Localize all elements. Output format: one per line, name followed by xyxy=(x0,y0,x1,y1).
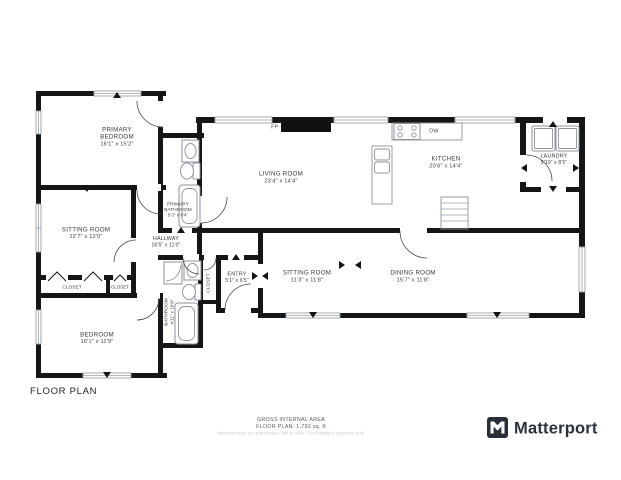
kitchen-dims: 20'6" x 14'4" xyxy=(429,164,462,170)
hallway-dims: 16'5" x 11'0" xyxy=(151,243,180,249)
primary-bathroom-dims: 5'3" x 8'4" xyxy=(168,213,189,218)
fireplace-label: FP xyxy=(271,125,279,131)
bathroom-bathtub-icon xyxy=(175,303,198,344)
primary-bathroom-sink-icon xyxy=(182,140,199,162)
bathroom-label: BATHROOM xyxy=(164,298,169,326)
dishwasher-label: DW xyxy=(429,129,439,135)
kitchen-island-sink-icon xyxy=(372,146,392,204)
primary-bedroom-label: PRIMARY xyxy=(102,127,132,134)
stove-icon xyxy=(394,124,420,140)
primary-bathroom-toilet-icon xyxy=(181,163,201,179)
dining-room-dims: 15'7" x 11'8" xyxy=(397,278,430,284)
entry-label: ENTRY xyxy=(227,272,246,278)
closet-2-label: CLOSET xyxy=(111,285,129,290)
hallway-label: HALLWAY xyxy=(153,236,179,242)
matterport-logo-icon xyxy=(487,417,508,438)
sitting-room-2-label: SITTING ROOM xyxy=(283,270,331,277)
closet-1-label: CLOSET xyxy=(62,285,81,290)
laundry-label: LAUNDRY xyxy=(540,154,567,160)
primary-bedroom-dims: 16'1" x 15'2" xyxy=(100,142,133,148)
stairs-icon xyxy=(441,197,468,229)
floor-plan-page: PRIMARY BEDROOM 16'1" x 15'2" PRIMARY BA… xyxy=(0,0,621,480)
laundry-dims: 5'10" x 8'5" xyxy=(541,160,568,166)
kitchen-label: KITCHEN xyxy=(432,156,461,163)
bathroom-sink-icon xyxy=(184,261,201,280)
sitting-room-1-dims: 12'7" x 12'0" xyxy=(69,234,102,240)
dryer-icon xyxy=(556,126,579,151)
floor-plan-drawing: PRIMARY BEDROOM 16'1" x 15'2" PRIMARY BA… xyxy=(0,0,621,480)
primary-bathroom-label: PRIMARY xyxy=(167,202,190,207)
living-room-label: LIVING ROOM xyxy=(259,171,303,178)
shower-icon xyxy=(164,262,182,284)
living-room-dims: 23'4" x 14'4" xyxy=(264,179,297,185)
closet-3-label: CLOSET xyxy=(206,273,211,292)
disclaimer-text: Measurements are approximate. Not to sca… xyxy=(217,431,365,436)
bedroom-dims: 16'1" x 11'9" xyxy=(81,339,114,345)
floor-plan-area-value: FLOOR PLAN: 1,792 sq. ft xyxy=(256,424,326,430)
primary-bathroom-label: BATHROOM xyxy=(164,207,192,212)
matterport-logo: Matterport xyxy=(487,417,598,438)
page-title: FLOOR PLAN xyxy=(30,386,97,397)
footer: GROSS INTERNAL AREA FLOOR PLAN: 1,792 sq… xyxy=(217,417,365,436)
bathroom-toilet-icon xyxy=(183,284,202,300)
gross-internal-area-label: GROSS INTERNAL AREA xyxy=(257,417,325,423)
washer-icon xyxy=(532,126,555,151)
bathroom-dims: 4'11" x 10'8" xyxy=(170,299,175,324)
dining-room-label: DINING ROOM xyxy=(390,270,435,277)
entry-dims: 5'1" x 6'5" xyxy=(225,278,249,284)
bedroom-label: BEDROOM xyxy=(80,332,114,339)
sitting-room-1-label: SITTING ROOM xyxy=(62,227,110,234)
matterport-wordmark: Matterport xyxy=(514,420,598,438)
primary-bedroom-label: BEDROOM xyxy=(100,134,134,141)
room-labels: PRIMARY BEDROOM 16'1" x 15'2" PRIMARY BA… xyxy=(62,125,568,346)
sitting-room-2-dims: 11'3" x 11'8" xyxy=(291,278,323,284)
fireplace-icon xyxy=(281,118,331,132)
